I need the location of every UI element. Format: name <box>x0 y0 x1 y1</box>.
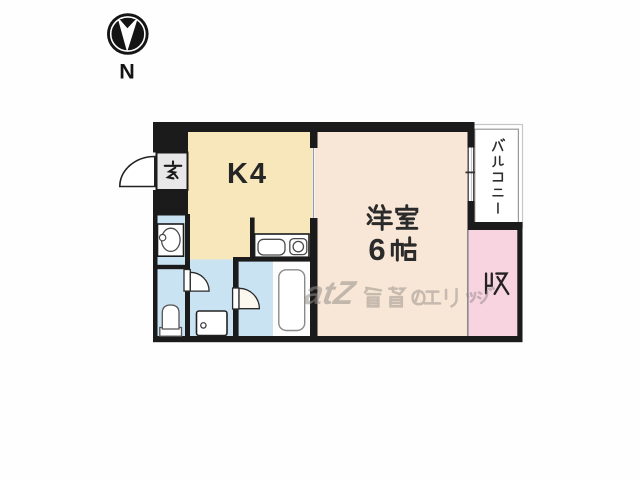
svg-text:atZ: atZ <box>302 275 360 312</box>
svg-text:6: 6 <box>368 232 385 267</box>
svg-text:N: N <box>119 60 135 84</box>
svg-text:K4: K4 <box>227 158 268 190</box>
